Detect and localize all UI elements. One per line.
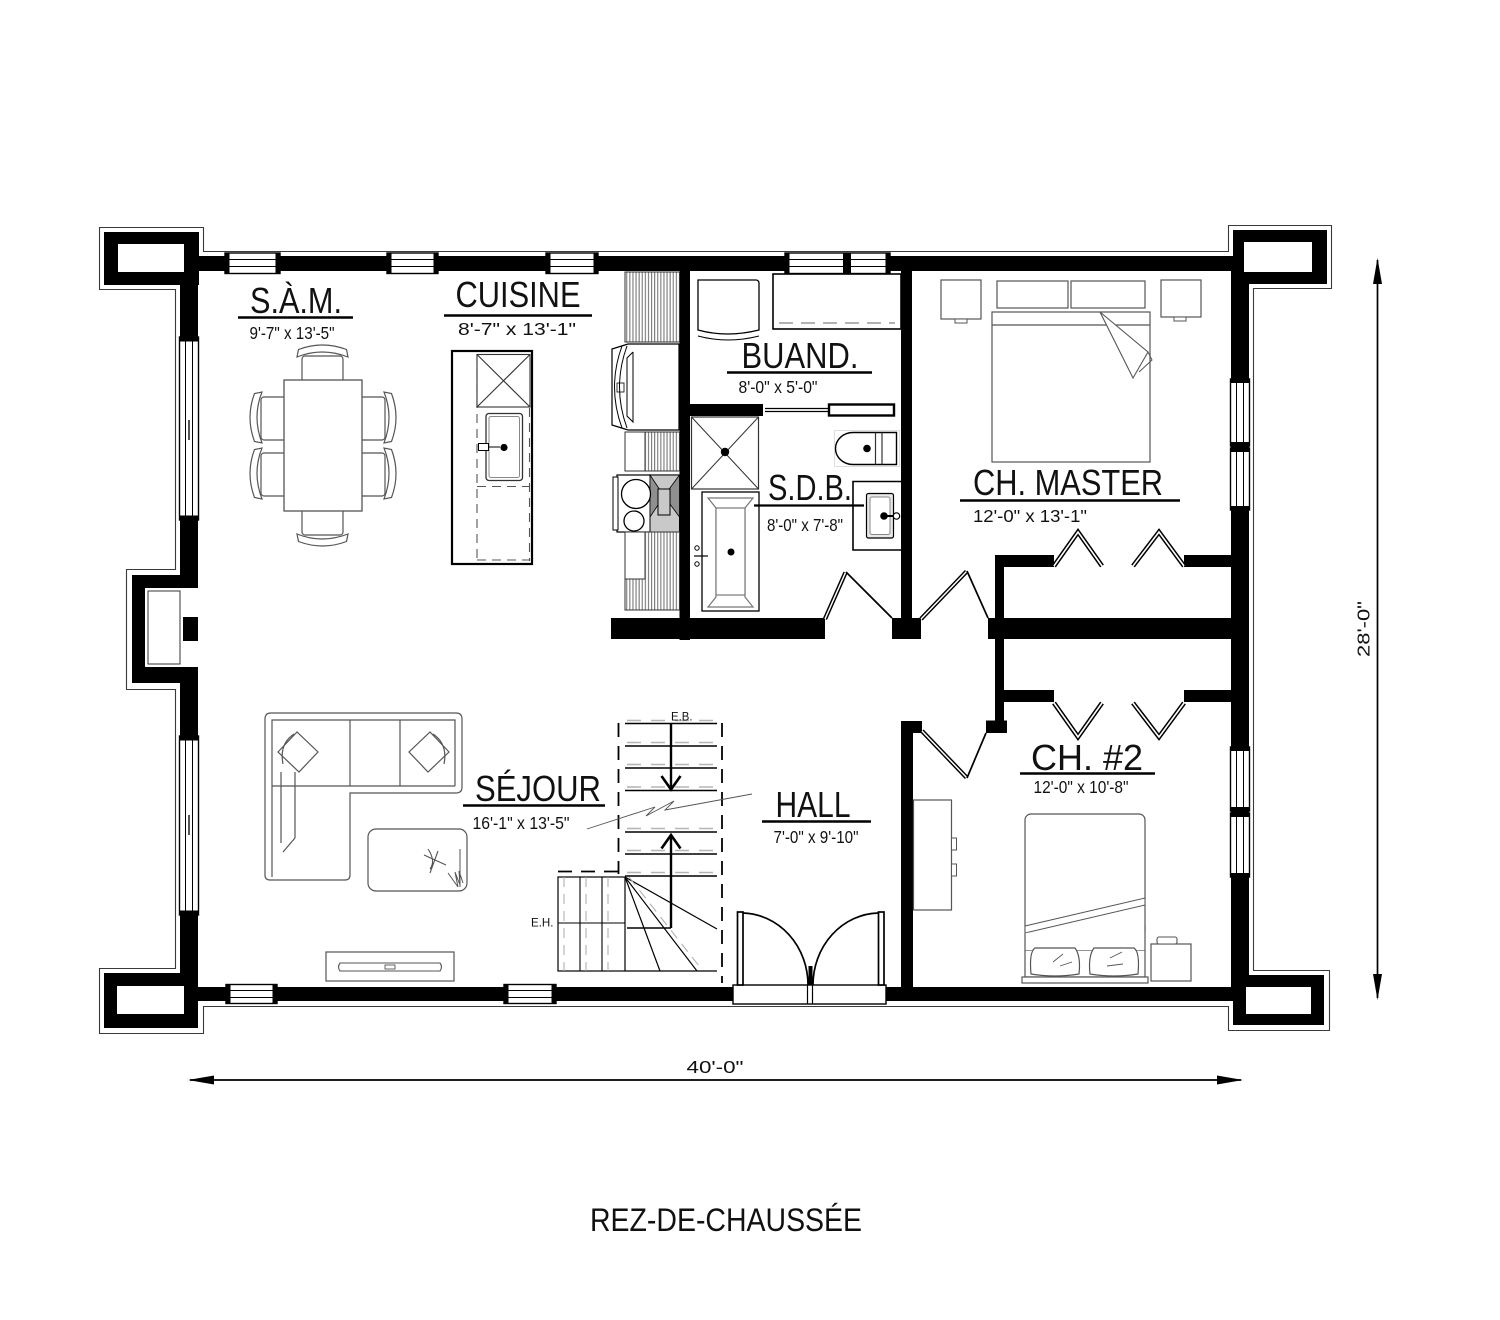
svg-text:S.À.M.: S.À.M.: [250, 280, 342, 321]
svg-text:CH. #2: CH. #2: [1031, 737, 1143, 778]
svg-text:12'-0" x 10'-8": 12'-0" x 10'-8": [1034, 777, 1129, 797]
svg-text:40'-0": 40'-0": [687, 1057, 744, 1077]
svg-text:12'-0" x 13'-1": 12'-0" x 13'-1": [973, 506, 1087, 526]
svg-text:9'-7" x 13'-5": 9'-7" x 13'-5": [250, 323, 335, 343]
svg-text:8'-7" x 13'-1": 8'-7" x 13'-1": [458, 319, 576, 339]
svg-text:16'-1" x 13'-5": 16'-1" x 13'-5": [473, 813, 570, 833]
svg-text:S.D.B.: S.D.B.: [768, 467, 852, 508]
svg-text:HALL: HALL: [776, 784, 851, 825]
svg-text:28'-0": 28'-0": [1354, 601, 1374, 657]
svg-text:REZ-DE-CHAUSSÉE: REZ-DE-CHAUSSÉE: [590, 1202, 862, 1238]
svg-text:7'-0" x 9'-10": 7'-0" x 9'-10": [774, 827, 859, 847]
svg-text:8'-0" x 5'-0": 8'-0" x 5'-0": [739, 377, 818, 397]
svg-text:CH. MASTER: CH. MASTER: [973, 462, 1163, 503]
svg-text:E.H.: E.H.: [531, 916, 554, 930]
svg-text:SÉJOUR: SÉJOUR: [475, 768, 601, 809]
svg-text:BUAND.: BUAND.: [742, 335, 859, 376]
svg-text:E.B.: E.B.: [671, 710, 693, 724]
svg-text:8'-0" x 7'-8": 8'-0" x 7'-8": [767, 515, 843, 535]
svg-text:CUISINE: CUISINE: [456, 274, 581, 315]
